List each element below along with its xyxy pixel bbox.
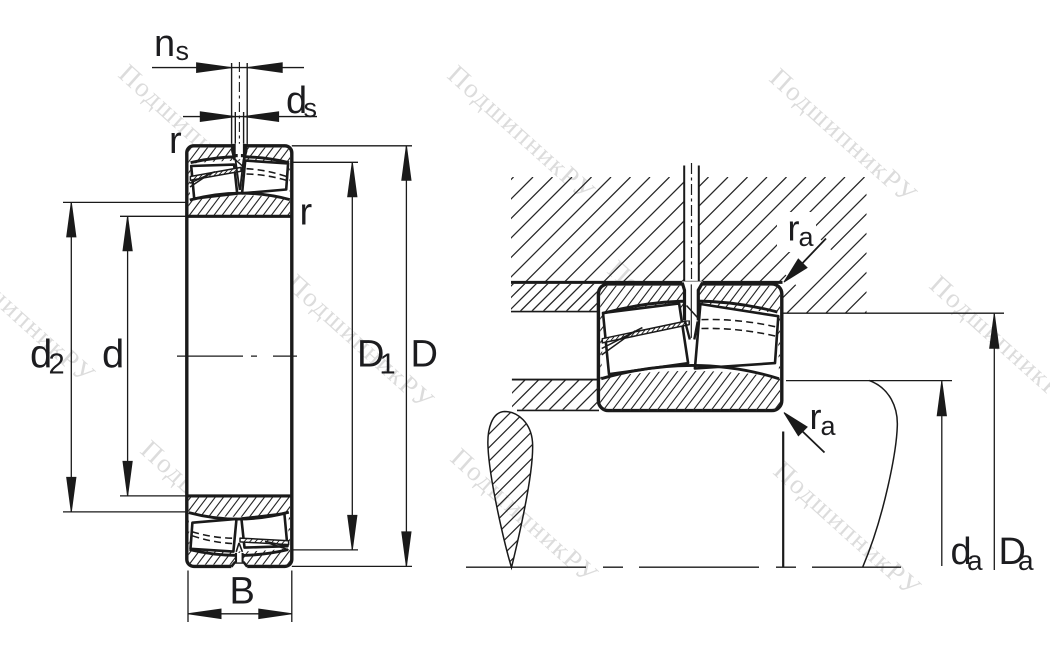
svg-text:2: 2	[49, 349, 65, 381]
svg-text:r: r	[169, 120, 182, 162]
svg-text:1: 1	[380, 349, 396, 381]
svg-text:n: n	[154, 23, 175, 65]
svg-text:a: a	[1018, 545, 1034, 576]
svg-text:B: B	[230, 571, 255, 613]
svg-text:D: D	[411, 334, 438, 376]
svg-text:s: s	[176, 36, 190, 66]
svg-text:a: a	[821, 411, 837, 441]
svg-text:a: a	[799, 222, 815, 252]
svg-text:d: d	[102, 333, 124, 377]
svg-text:s: s	[304, 93, 318, 123]
svg-text:a: a	[967, 545, 983, 576]
svg-text:r: r	[300, 192, 313, 234]
